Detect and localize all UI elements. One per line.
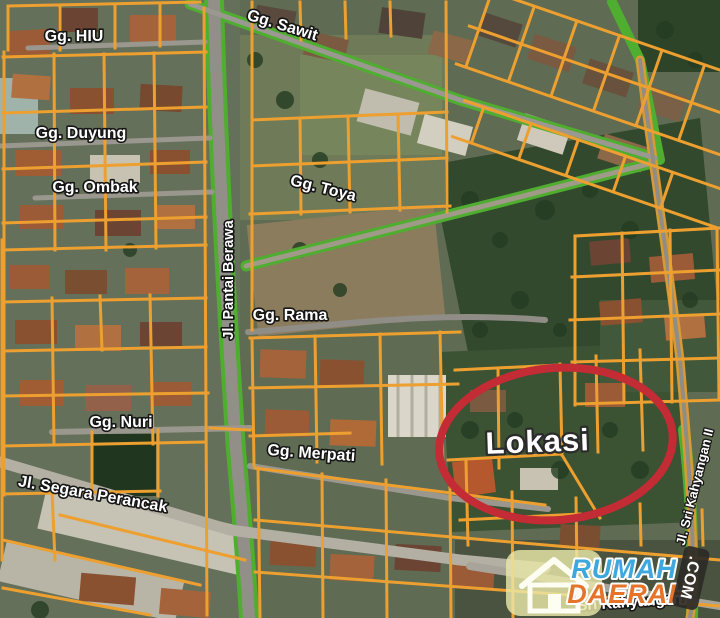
map-canvas: Gg. HIU Gg. Sawit Gg. Duyung Gg. Ombak G… <box>0 0 720 618</box>
lokasi-label: Lokasi <box>485 422 590 461</box>
street-label-jl-pantai-berawa: Jl. Pantai Berawa <box>221 219 237 339</box>
street-label-gg-ombak: Gg. Ombak <box>52 179 137 196</box>
street-label-gg-duyung: Gg. Duyung <box>36 125 127 142</box>
street-label-gg-rama: Gg. Rama <box>253 307 328 324</box>
satellite-map: Gg. HIU Gg. Sawit Gg. Duyung Gg. Ombak G… <box>0 0 720 618</box>
street-label-gg-nuri: Gg. Nuri <box>89 414 152 431</box>
street-label-gg-hiu: Gg. HIU <box>45 28 104 45</box>
watermark-brand-bottom: DAERAH <box>567 579 689 609</box>
